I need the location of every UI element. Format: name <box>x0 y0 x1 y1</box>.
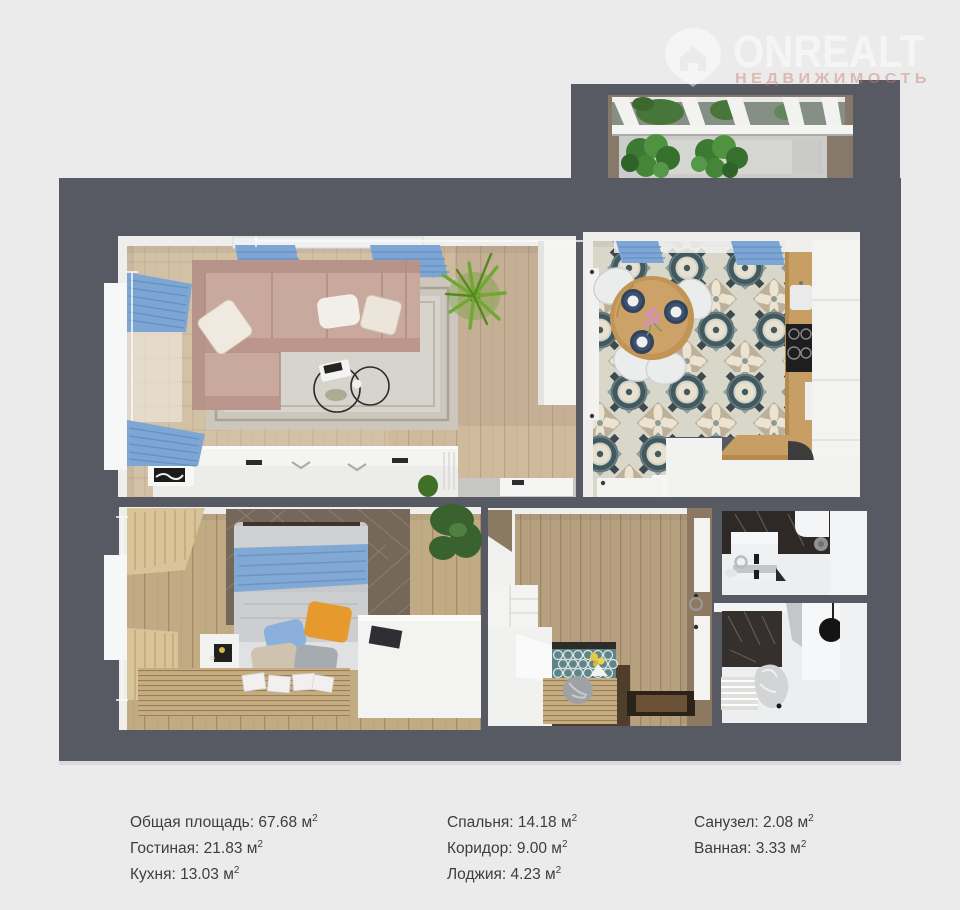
svg-text:НЕДВИЖИМОСТЬ: НЕДВИЖИМОСТЬ <box>735 71 931 87</box>
svg-text:ONREALT: ONREALT <box>733 26 924 77</box>
